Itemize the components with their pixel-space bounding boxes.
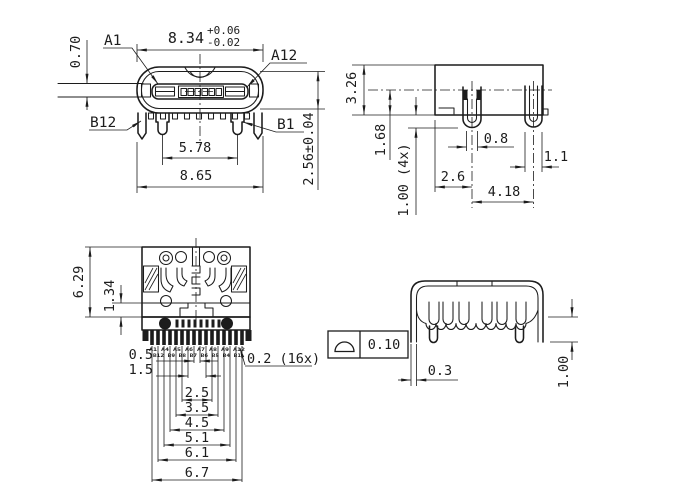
left-shield-leg <box>156 113 169 135</box>
side-plate-edges <box>58 84 143 98</box>
dim-shell-width-tol-minus: -0.02 <box>207 36 240 49</box>
dim-overall-width: 8.65 <box>180 168 213 184</box>
gdt-frame: 0.10 <box>328 331 408 358</box>
dim-leg-length-4x: 1.00 (4x) <box>396 143 412 216</box>
dim-pin-width-16x: 0.2 (16x) <box>247 351 320 367</box>
pin-label-b1: B1 <box>277 117 294 133</box>
dim-pitch-7: 6.7 <box>185 465 209 481</box>
front-leg-weld <box>477 90 482 100</box>
dim-leg-pitch: 4.18 <box>488 184 521 200</box>
dim-pitch-3: 3.5 <box>185 400 209 416</box>
dim-pitch-4: 4.5 <box>185 415 209 431</box>
side-view: 3.26 1.68 1.00 (4x) 0.8 1.1 2.6 4.18 <box>344 65 568 217</box>
dim-pitch-5: 5.1 <box>185 430 209 446</box>
dim-rear-leg-length: 1.00 <box>556 356 572 389</box>
rear-right-leg <box>516 326 524 343</box>
dim-shell-width: 8.34 <box>168 29 204 47</box>
rear-shell-inner <box>417 286 539 342</box>
dim-front-leg-width: 0.8 <box>484 131 508 147</box>
dim-front-depth: 1.34 <box>102 280 118 313</box>
spring-contacts-right <box>205 268 231 292</box>
front-leg-weld <box>463 90 468 100</box>
dim-pitch-0: 0.5 <box>129 347 153 363</box>
top-view: A1 A4 A5 A6 A7 A8 A9 A12 B12 B9 B8 B7 B6… <box>71 238 320 482</box>
pin-comb-16x <box>143 330 252 345</box>
crimp-scallops <box>426 324 526 330</box>
left-post <box>138 113 146 139</box>
dim-side-plate-height: 0.70 <box>68 36 84 69</box>
dim-front-leg-offset: 2.6 <box>441 169 465 185</box>
crimp-edge-left <box>417 310 427 324</box>
crimp-edge-right <box>526 310 538 324</box>
dim-centerline-to-base: 1.68 <box>373 124 389 157</box>
knurl-left <box>159 318 171 330</box>
dim-shell-height: 2.56±0.04 <box>301 112 317 185</box>
dim-overall-height: 3.26 <box>344 72 360 105</box>
pin-row-a-labels: A1 A4 A5 A6 A7 A8 A9 A12 <box>149 347 246 353</box>
drawing-sheet: 8.34 +0.06 -0.02 A1 A12 B12 B1 0.70 5.78… <box>0 0 690 500</box>
dim-rear-leg-width: 1.1 <box>544 149 568 165</box>
locator-hole-left <box>161 296 172 307</box>
locator-hole-right <box>221 296 232 307</box>
gdt-tolerance-value: 0.10 <box>368 337 401 353</box>
pin-label-a1: A1 <box>104 33 121 49</box>
knurl-right <box>221 318 233 330</box>
front-view: 8.34 +0.06 -0.02 A1 A12 B12 B1 0.70 5.78… <box>58 24 325 193</box>
dim-leg-span: 5.78 <box>179 140 212 156</box>
rear-view: 0.10 0.3 1.00 <box>328 281 578 388</box>
center-contact-block <box>180 303 213 317</box>
pin-tails-in-flange <box>176 320 221 328</box>
emc-bracket-left <box>144 266 159 292</box>
contact-fingers <box>429 302 526 325</box>
dim-pitch-2: 2.5 <box>185 385 209 401</box>
dim-pitch-1: 1.5 <box>129 362 153 378</box>
dim-pitch-6: 6.1 <box>185 445 209 461</box>
emc-bracket-right <box>232 266 247 292</box>
spring-contacts-left <box>161 268 187 292</box>
front-inner-step <box>439 108 454 114</box>
pin-label-b12: B12 <box>90 115 116 131</box>
dim-body-depth: 6.29 <box>71 266 87 299</box>
pin-label-a12: A12 <box>271 48 297 64</box>
profile-of-surface-icon <box>335 342 354 352</box>
pin-row-b-labels: B12 B9 B8 B7 B6 B5 B4 B1 <box>153 353 242 359</box>
dim-shell-thickness: 0.3 <box>428 363 452 379</box>
rivet-holes <box>160 252 231 265</box>
technical-drawing-usb-c-connector: 8.34 +0.06 -0.02 A1 A12 B12 B1 0.70 5.78… <box>0 0 690 500</box>
solder-tab-row <box>149 113 250 119</box>
contact-pads <box>181 89 222 96</box>
